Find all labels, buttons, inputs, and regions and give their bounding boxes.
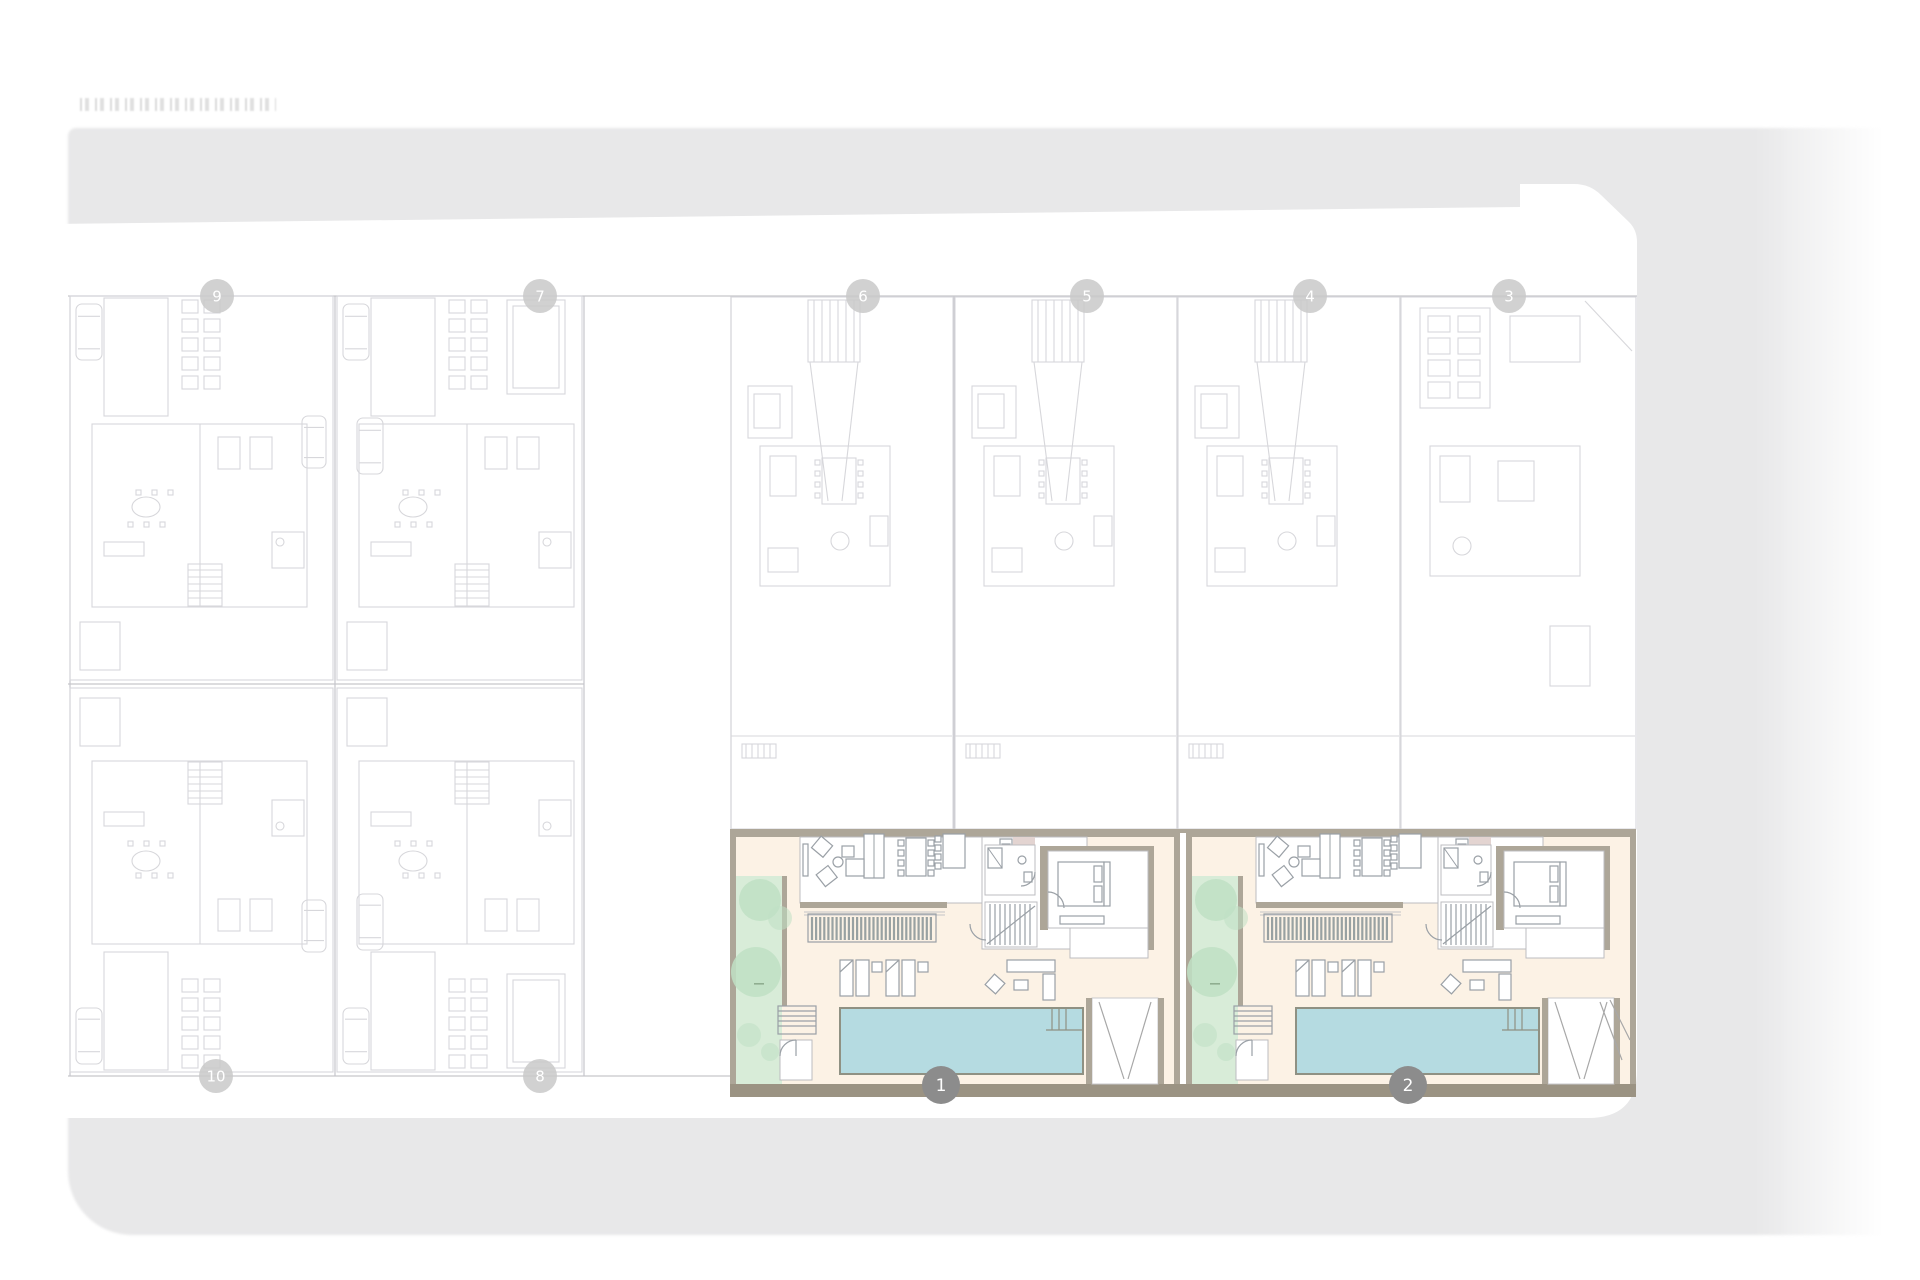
- site-plan-canvas: 97654310812: [0, 0, 1920, 1280]
- unit-marker-8[interactable]: 8: [523, 1059, 557, 1093]
- pool: [1296, 1008, 1539, 1074]
- driveway: [1086, 998, 1164, 1084]
- unit-marker-5[interactable]: 5: [1070, 279, 1104, 313]
- unit-marker-10[interactable]: 10: [199, 1059, 233, 1093]
- svg-text:5: 5: [1082, 287, 1092, 305]
- svg-text:2: 2: [1403, 1076, 1414, 1096]
- unit-marker-2[interactable]: 2: [1389, 1066, 1427, 1104]
- pool: [840, 1008, 1083, 1074]
- svg-text:9: 9: [212, 287, 222, 305]
- unit-marker-6[interactable]: 6: [846, 279, 880, 313]
- svg-text:10: 10: [206, 1067, 225, 1085]
- unit-2-plan[interactable]: [1186, 832, 1636, 1097]
- svg-text:4: 4: [1305, 287, 1315, 305]
- garden-label-mark: [1210, 983, 1220, 985]
- floor-plan-svg: 97654310812: [0, 0, 1920, 1280]
- svg-text:8: 8: [535, 1067, 545, 1085]
- unit-marker-9[interactable]: 9: [200, 279, 234, 313]
- svg-text:3: 3: [1504, 287, 1514, 305]
- driveway: [1542, 998, 1620, 1084]
- bathroom: [985, 845, 1035, 895]
- garden-label-mark: [754, 983, 764, 985]
- svg-text:6: 6: [858, 287, 868, 305]
- unit-marker-3[interactable]: 3: [1492, 279, 1526, 313]
- svg-text:1: 1: [936, 1076, 947, 1096]
- bathroom: [1441, 845, 1491, 895]
- unit-marker-4[interactable]: 4: [1293, 279, 1327, 313]
- unit-1-plan[interactable]: [730, 832, 1180, 1097]
- svg-text:7: 7: [535, 287, 545, 305]
- unit-marker-7[interactable]: 7: [523, 279, 557, 313]
- unit-marker-1[interactable]: 1: [922, 1066, 960, 1104]
